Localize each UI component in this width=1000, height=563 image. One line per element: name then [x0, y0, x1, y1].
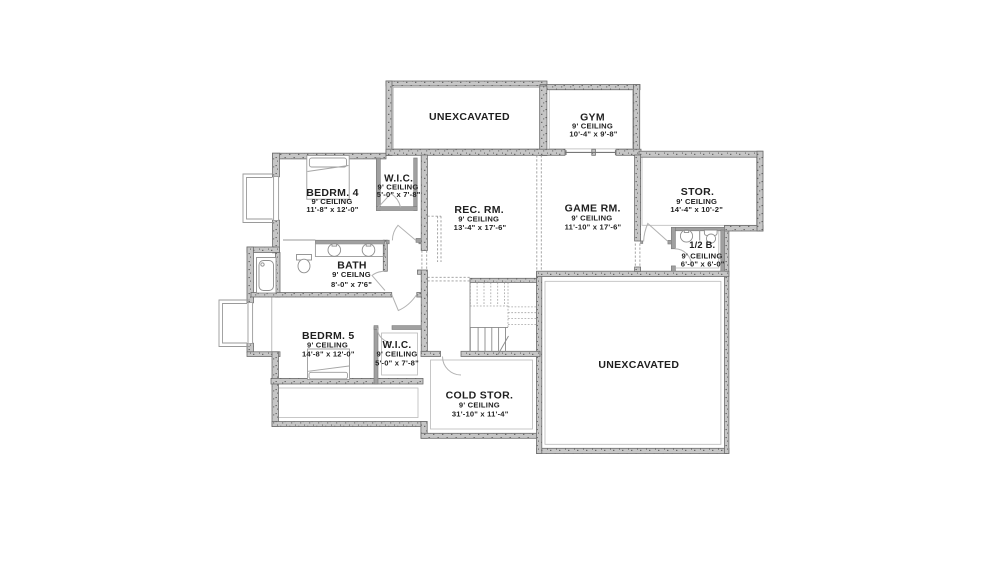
- svg-text:14'-4" x 10'-2": 14'-4" x 10'-2": [670, 205, 723, 214]
- svg-text:STOR.: STOR.: [681, 186, 714, 198]
- svg-text:1/2 B.: 1/2 B.: [689, 240, 715, 250]
- svg-text:10'-4" x 9'-8": 10'-4" x 9'-8": [569, 130, 617, 139]
- svg-text:9' CEILING: 9' CEILING: [377, 350, 418, 359]
- svg-text:GAME RM.: GAME RM.: [565, 202, 621, 214]
- svg-text:6'-0" x 6'-0": 6'-0" x 6'-0": [681, 259, 725, 268]
- svg-text:31'-10" x 11'-4": 31'-10" x 11'-4": [452, 409, 509, 418]
- svg-text:14'-8" x 12'-0": 14'-8" x 12'-0": [302, 349, 355, 358]
- svg-text:UNEXCAVATED: UNEXCAVATED: [429, 111, 510, 123]
- svg-text:11'-8" x 12'-0": 11'-8" x 12'-0": [306, 205, 358, 214]
- svg-text:11'-10" x 17'-6": 11'-10" x 17'-6": [565, 223, 622, 232]
- svg-text:9' CEILING: 9' CEILING: [459, 400, 500, 409]
- svg-text:9' CEILNG: 9' CEILNG: [332, 270, 371, 279]
- svg-text:9' CEILING: 9' CEILING: [307, 341, 348, 350]
- svg-text:13'-4" x 17'-6": 13'-4" x 17'-6": [454, 223, 507, 232]
- svg-text:5'-0" x 7'-8": 5'-0" x 7'-8": [377, 190, 421, 199]
- svg-text:UNEXCAVATED: UNEXCAVATED: [598, 359, 679, 371]
- svg-text:8'-0" x 7'6": 8'-0" x 7'6": [331, 280, 372, 289]
- svg-text:9' CEILING: 9' CEILING: [571, 214, 612, 223]
- svg-text:5'-0" x 7'-8": 5'-0" x 7'-8": [375, 359, 419, 368]
